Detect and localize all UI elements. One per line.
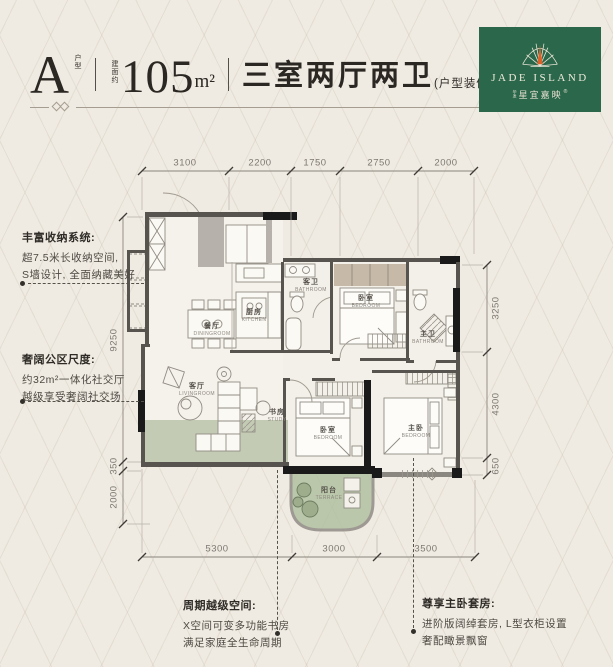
leader-dot (20, 281, 25, 286)
dim-label: 2750 (367, 158, 390, 169)
leader-line (413, 458, 414, 628)
dim-label: 3100 (173, 158, 196, 169)
room-label-bedroom-top: 卧室BEDROOM (352, 294, 381, 310)
dim-label: 2200 (248, 158, 271, 169)
leader-line (28, 401, 144, 402)
annotation-master-suite: 尊享主卧套房: 进阶版阔绰套房, L型衣柜设置 奢配瞰景飘窗 (422, 595, 567, 650)
dim-label: 2000 (109, 485, 120, 508)
leader-line (28, 283, 144, 284)
dim-label: 9250 (109, 328, 120, 351)
dim-label: 350 (109, 457, 120, 474)
room-label-master-bedroom: 主卧BEDROOM (402, 424, 431, 440)
leader-dot (411, 629, 416, 634)
room-label-living: 客厅LIVINGROOM (179, 382, 215, 398)
dim-label: 650 (491, 457, 502, 474)
dim-label: 5300 (205, 544, 228, 555)
dim-label: 3250 (491, 296, 502, 319)
annotation-storage: 丰富收纳系统: 超7.5米长收纳空间, S墙设计, 全面纳藏美好 (22, 229, 135, 284)
room-label-master-bathroom: 主卫BATHROOM (412, 330, 444, 346)
dimension-lines (0, 0, 613, 667)
dim-label: 3500 (414, 544, 437, 555)
leader-line (277, 470, 278, 630)
dim-label: 3000 (322, 544, 345, 555)
floorplan-poster: { "colors": { "page_bg": "#efeae2", "log… (0, 0, 613, 667)
annotation-public-area: 奢阔公区尺度: 约32m²一体化社交厅 越级享受奢阔社交场 (22, 351, 125, 406)
room-label-guest-bathroom: 客卫BATHROOM (295, 278, 327, 294)
room-label-kitchen: 厨房KITCHEN (242, 308, 267, 324)
room-label-study: 书房STUDY (268, 408, 287, 424)
room-label-dining: 餐厅DININGROOM (193, 322, 230, 338)
dim-label: 2000 (434, 158, 457, 169)
room-label-bedroom-mid: 卧室BEDROOM (314, 426, 343, 442)
room-label-terrace: 阳台TERRACE (316, 486, 343, 502)
dim-label: 4300 (491, 392, 502, 415)
leader-dot (20, 399, 25, 404)
dim-label: 1750 (303, 158, 326, 169)
annotation-flex-space: 周期越级空间: X空间可变多功能书房 满足家庭全生命周期 (183, 597, 290, 652)
leader-dot (275, 631, 280, 636)
